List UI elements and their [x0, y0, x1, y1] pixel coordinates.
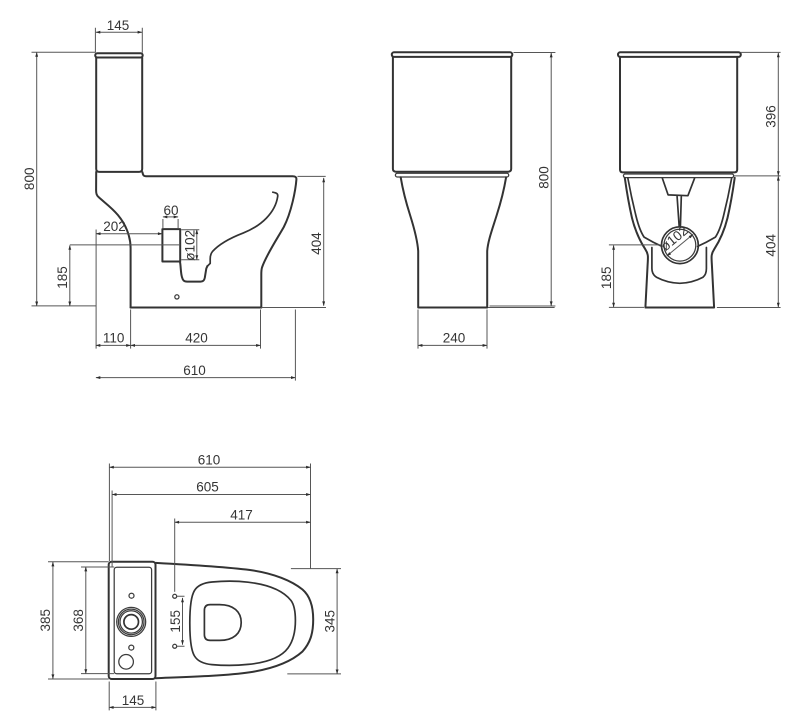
svg-text:145: 145 — [122, 693, 145, 708]
svg-text:345: 345 — [322, 610, 337, 633]
svg-text:396: 396 — [764, 105, 779, 128]
svg-text:202: 202 — [103, 219, 126, 234]
svg-text:404: 404 — [764, 234, 779, 257]
svg-text:385: 385 — [38, 609, 53, 632]
svg-text:110: 110 — [103, 330, 125, 345]
svg-text:60: 60 — [163, 203, 178, 218]
svg-text:240: 240 — [443, 330, 466, 345]
svg-text:605: 605 — [196, 480, 219, 495]
svg-text:800: 800 — [537, 166, 552, 189]
svg-text:368: 368 — [71, 609, 86, 632]
svg-text:800: 800 — [22, 168, 37, 191]
svg-text:417: 417 — [230, 507, 253, 522]
svg-text:610: 610 — [198, 452, 221, 467]
svg-text:610: 610 — [183, 363, 206, 378]
svg-text:404: 404 — [309, 232, 324, 255]
svg-text:185: 185 — [599, 267, 614, 290]
svg-text:145: 145 — [107, 18, 130, 33]
svg-text:155: 155 — [168, 610, 183, 633]
svg-text:420: 420 — [185, 330, 208, 345]
svg-text:ø102: ø102 — [182, 230, 197, 261]
svg-text:185: 185 — [55, 266, 70, 289]
